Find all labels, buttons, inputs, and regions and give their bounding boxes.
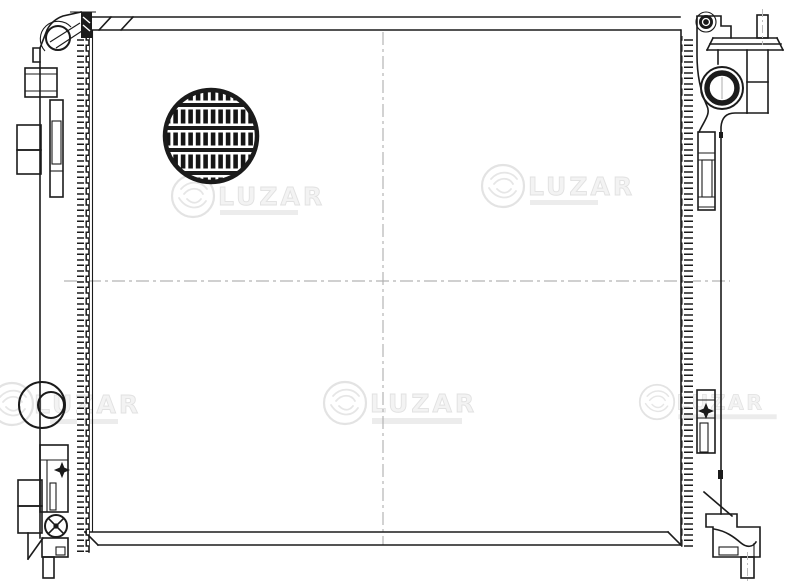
cooling-fins-right [681, 36, 693, 550]
left-connector-block-mid-1 [17, 125, 41, 150]
core-top-chamfer-2 [121, 17, 133, 30]
left-lower-bracket [40, 445, 68, 512]
filler-neck [701, 67, 743, 109]
centerlines [64, 32, 730, 545]
right-lower-bracket [697, 390, 715, 453]
mounting-foot-right [704, 492, 760, 584]
core-detail-view [160, 85, 262, 187]
detail-fin-pattern [160, 85, 262, 187]
drain-screw [45, 515, 67, 537]
watermark-text: LUZAR [370, 389, 477, 418]
right-foot-slot [719, 547, 738, 555]
bleed-bolt [696, 12, 716, 32]
left-connector-block-lower-1 [18, 480, 42, 506]
left-connector-block-mid-2 [17, 150, 41, 174]
left-top-bracket-notch [33, 48, 40, 62]
watermark-2: LUZAR [482, 165, 635, 207]
left-lower-bracket-slot [50, 483, 56, 510]
left-connector-block-lower-2 [18, 506, 42, 533]
core-top-chamfer-1 [99, 17, 111, 30]
mounting-foot-left [28, 533, 68, 578]
right-upper-bracket [747, 50, 768, 113]
watermark-layer: LUZAR LUZAR LUZAR LUZAR LUZAR [0, 165, 777, 425]
right-tank [696, 9, 783, 584]
left-foot-pin [43, 557, 54, 578]
left-top-clip [81, 12, 92, 38]
left-side-channel-inner [52, 121, 61, 164]
watermark-tagline-bar [372, 418, 462, 424]
right-foot-curve [714, 529, 756, 546]
left-foot-slot [56, 547, 65, 555]
left-connector-block-upper [25, 68, 57, 97]
watermark-text: LUZAR [218, 182, 325, 211]
watermark-tagline-bar [678, 414, 776, 419]
watermark-tagline-bar [530, 200, 598, 205]
radiator-core [77, 17, 693, 552]
watermark-text: LUZAR [528, 172, 635, 201]
watermark-tagline-bar [220, 210, 298, 215]
watermark-4: LUZAR [0, 383, 141, 425]
cooling-fins-left [77, 36, 89, 552]
right-top-bracket [707, 9, 783, 50]
radiator-technical-drawing: LUZAR LUZAR LUZAR LUZAR LUZAR [0, 0, 800, 586]
drawing-canvas: LUZAR LUZAR LUZAR LUZAR LUZAR [0, 0, 800, 586]
right-mid-bracket [698, 132, 723, 210]
right-lower-bracket-slot [700, 423, 708, 452]
right-edge-tab [718, 470, 723, 479]
core-bottom-chamfer-right [668, 532, 681, 545]
right-tank-edge [721, 113, 747, 514]
watermark-3: LUZAR [324, 382, 477, 424]
